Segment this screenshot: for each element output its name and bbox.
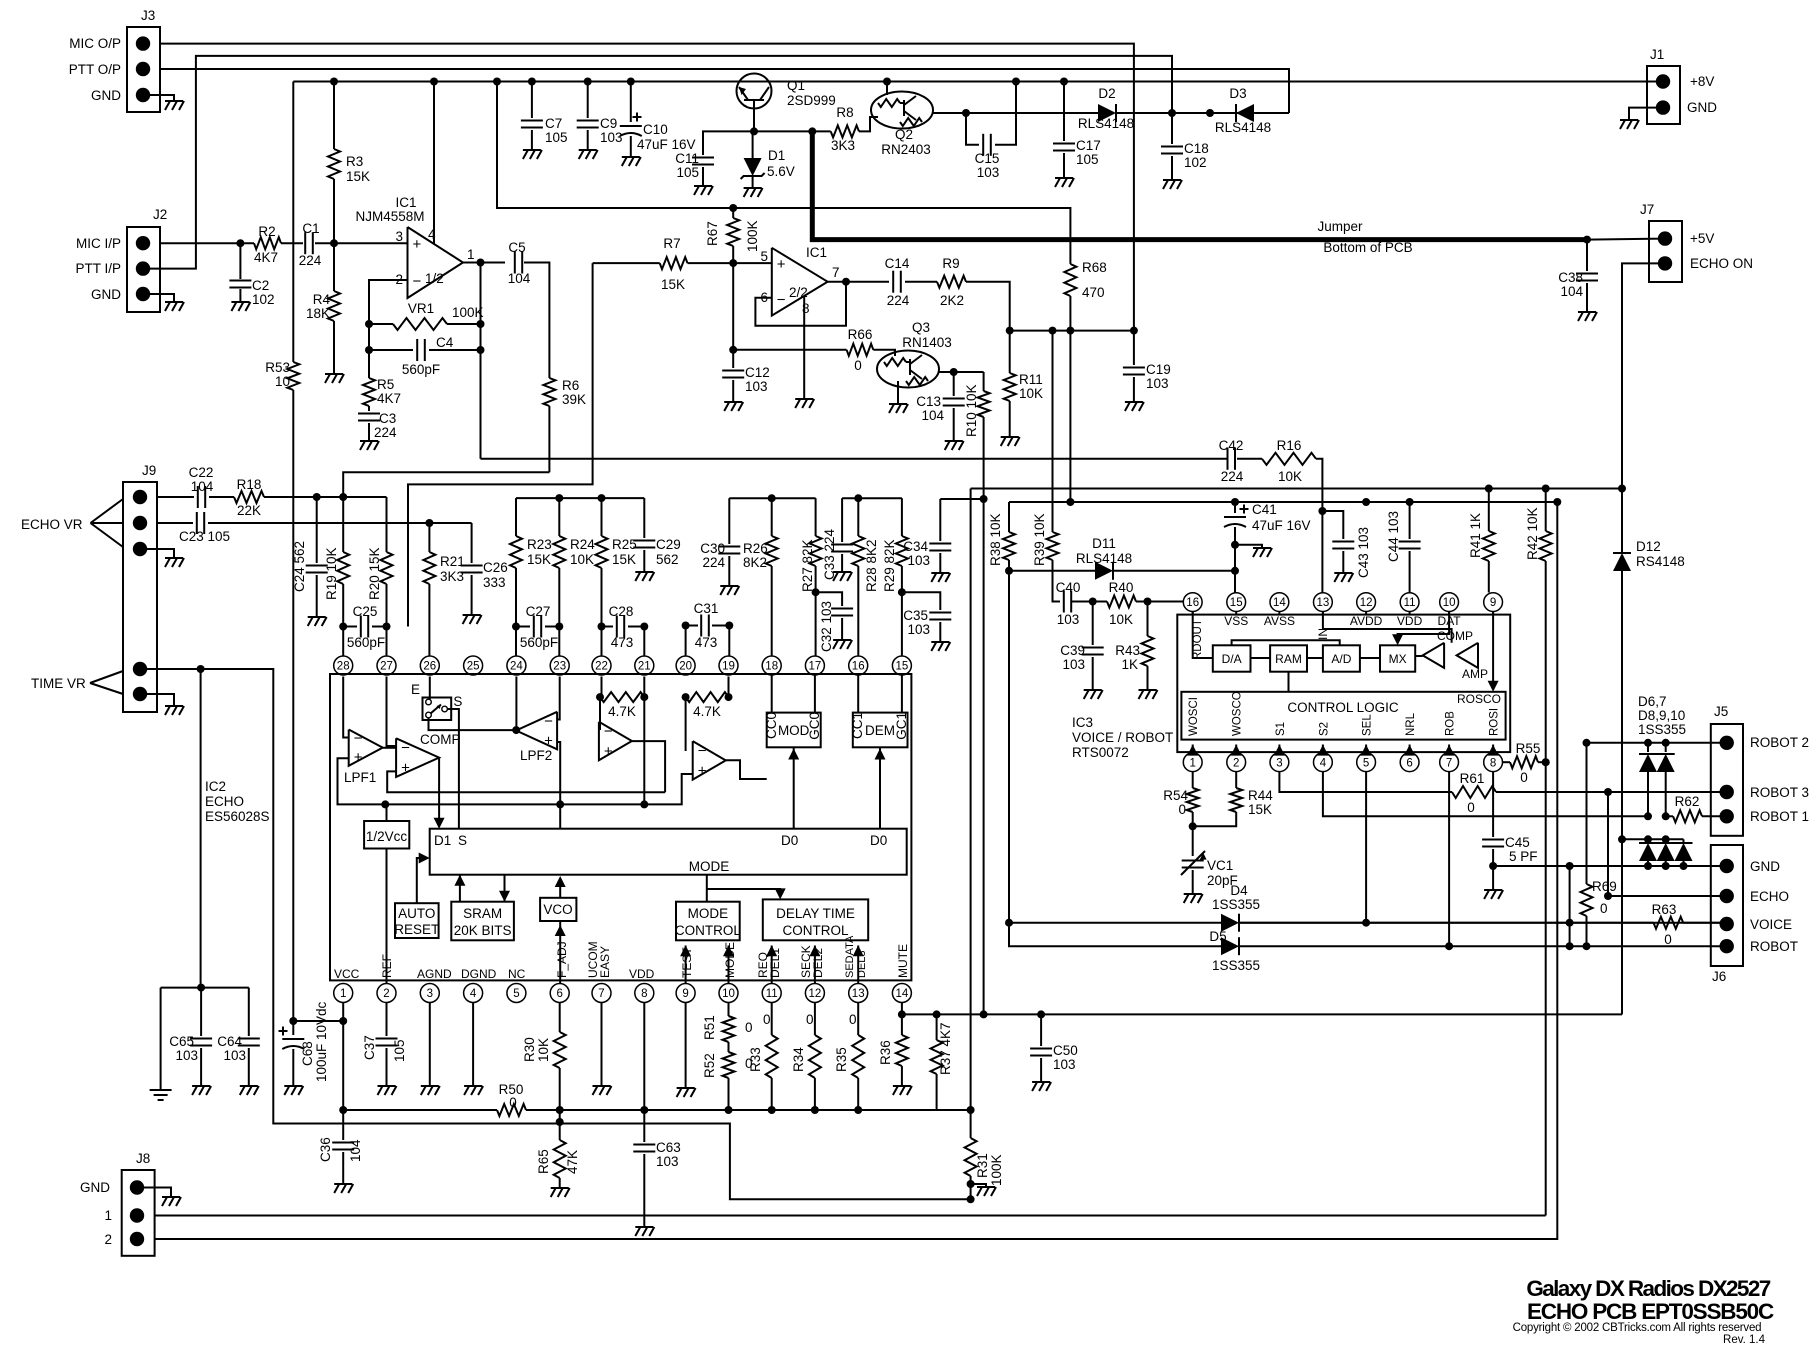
svg-text:C35: C35 <box>903 608 928 623</box>
svg-text:R37 4K7: R37 4K7 <box>938 1022 953 1075</box>
svg-text:ROB: ROB <box>1445 711 1457 736</box>
svg-text:R8: R8 <box>836 105 853 120</box>
svg-text:C30: C30 <box>700 541 725 556</box>
svg-text:26: 26 <box>423 661 436 673</box>
svg-text:19: 19 <box>722 661 735 673</box>
svg-text:Jumper: Jumper <box>1317 219 1363 234</box>
svg-text:104: 104 <box>348 1139 363 1162</box>
svg-text:+5V: +5V <box>1690 231 1714 246</box>
svg-text:15K: 15K <box>612 552 636 567</box>
svg-text:R43: R43 <box>1115 643 1140 658</box>
svg-text:0: 0 <box>1520 770 1528 785</box>
svg-text:−: − <box>777 291 786 308</box>
svg-text:S: S <box>458 833 467 848</box>
svg-text:100K: 100K <box>745 220 760 252</box>
svg-text:1/2: 1/2 <box>425 271 444 286</box>
svg-text:LPF1: LPF1 <box>344 770 376 785</box>
svg-text:VOICE: VOICE <box>1750 917 1792 932</box>
svg-text:10: 10 <box>275 374 290 389</box>
svg-text:+: + <box>354 749 363 766</box>
svg-text:PTT I/P: PTT I/P <box>75 261 121 276</box>
svg-text:EASY: EASY <box>598 946 612 978</box>
svg-text:R25: R25 <box>612 537 637 552</box>
svg-text:0: 0 <box>1664 932 1672 947</box>
svg-text:R19 10K: R19 10K <box>324 547 339 600</box>
svg-text:5 PF: 5 PF <box>1509 849 1538 864</box>
svg-text:9: 9 <box>682 988 688 1000</box>
svg-text:C44 103: C44 103 <box>1386 511 1401 562</box>
svg-text:103: 103 <box>1053 1057 1076 1072</box>
svg-text:AUTO: AUTO <box>398 906 435 921</box>
svg-text:R42 10K: R42 10K <box>1525 507 1540 560</box>
svg-text:SEDATA: SEDATA <box>844 935 856 978</box>
svg-text:GND: GND <box>1750 859 1780 874</box>
svg-text:C63: C63 <box>656 1140 681 1155</box>
svg-text:COMP: COMP <box>1437 629 1473 643</box>
svg-text:102: 102 <box>252 292 275 307</box>
svg-text:R67: R67 <box>705 221 720 246</box>
svg-text:28: 28 <box>337 661 350 673</box>
svg-text:105: 105 <box>676 165 699 180</box>
svg-text:J1: J1 <box>1650 47 1664 62</box>
svg-text:47K: 47K <box>565 1150 580 1174</box>
svg-text:16: 16 <box>852 661 865 673</box>
svg-text:103: 103 <box>656 1154 679 1169</box>
svg-text:VCO: VCO <box>543 902 572 917</box>
svg-text:R31: R31 <box>975 1153 990 1178</box>
svg-text:2: 2 <box>104 1232 112 1247</box>
svg-text:560pF: 560pF <box>402 362 440 377</box>
svg-text:VDD: VDD <box>629 967 655 981</box>
svg-text:11: 11 <box>1404 597 1416 609</box>
svg-text:+: + <box>401 760 410 777</box>
svg-text:J6: J6 <box>1712 969 1726 984</box>
svg-text:C3: C3 <box>379 411 396 426</box>
svg-text:REF: REF <box>380 954 394 978</box>
svg-text:IC1: IC1 <box>806 245 827 260</box>
svg-text:J5: J5 <box>1714 704 1728 719</box>
svg-text:3: 3 <box>395 229 403 244</box>
svg-text:A/D: A/D <box>1331 652 1351 666</box>
svg-text:ES56028S: ES56028S <box>205 809 270 824</box>
svg-text:SEL: SEL <box>1362 714 1374 736</box>
svg-text:−: − <box>354 730 363 747</box>
svg-text:15K: 15K <box>1248 802 1272 817</box>
svg-text:RLS4148: RLS4148 <box>1076 551 1132 566</box>
svg-text:Rev. 1.4: Rev. 1.4 <box>1723 1334 1766 1346</box>
svg-text:ROBOT 2: ROBOT 2 <box>1750 735 1809 750</box>
svg-text:+8V: +8V <box>1690 74 1714 89</box>
svg-text:0: 0 <box>763 1012 771 1027</box>
svg-text:R38 10K: R38 10K <box>988 513 1003 566</box>
svg-text:D8,9,10: D8,9,10 <box>1638 708 1685 723</box>
svg-text:DEL2: DEL2 <box>811 948 825 978</box>
svg-text:6: 6 <box>1406 757 1412 769</box>
svg-text:J3: J3 <box>141 8 155 23</box>
svg-text:RLS4148: RLS4148 <box>1215 120 1271 135</box>
svg-text:C41: C41 <box>1252 502 1277 517</box>
svg-text:0: 0 <box>854 358 862 373</box>
svg-text:VR1: VR1 <box>408 301 434 316</box>
svg-text:R34: R34 <box>791 1047 806 1072</box>
svg-text:C64: C64 <box>217 1034 242 1049</box>
svg-text:103: 103 <box>223 1048 246 1063</box>
svg-text:R44: R44 <box>1248 788 1273 803</box>
svg-text:R55: R55 <box>1516 741 1541 756</box>
svg-text:R24: R24 <box>570 537 595 552</box>
svg-text:4.7K: 4.7K <box>608 704 636 719</box>
svg-text:R20 15K: R20 15K <box>367 547 382 600</box>
svg-text:C14: C14 <box>885 256 910 271</box>
svg-text:12: 12 <box>1360 597 1373 609</box>
svg-text:27: 27 <box>380 661 393 673</box>
svg-text:−: − <box>413 273 422 290</box>
svg-text:R10 10K: R10 10K <box>964 384 979 437</box>
svg-text:R4: R4 <box>313 292 331 307</box>
svg-text:NC: NC <box>508 967 526 981</box>
svg-text:105: 105 <box>545 130 568 145</box>
svg-text:R23: R23 <box>527 537 552 552</box>
svg-text:473: 473 <box>695 635 718 650</box>
svg-text:C23 105: C23 105 <box>179 529 230 544</box>
svg-text:10K: 10K <box>1019 386 1043 401</box>
svg-text:224: 224 <box>887 293 910 308</box>
svg-text:VSS: VSS <box>1224 614 1248 628</box>
svg-text:R33: R33 <box>748 1047 763 1072</box>
svg-text:R35: R35 <box>834 1047 849 1072</box>
svg-text:C33 224: C33 224 <box>822 528 837 580</box>
svg-text:WOSCO: WOSCO <box>1232 691 1244 736</box>
svg-text:22K: 22K <box>237 503 261 518</box>
svg-text:103: 103 <box>1062 657 1085 672</box>
svg-text:0: 0 <box>509 1095 517 1110</box>
svg-text:103: 103 <box>600 130 623 145</box>
svg-text:R7: R7 <box>663 236 680 251</box>
svg-text:R5: R5 <box>377 377 394 392</box>
svg-text:5: 5 <box>1363 757 1369 769</box>
svg-text:R41 1K: R41 1K <box>1468 513 1483 558</box>
svg-text:RN2403: RN2403 <box>881 142 931 157</box>
svg-text:C26: C26 <box>483 560 508 575</box>
svg-text:ROBOT 1: ROBOT 1 <box>1750 809 1809 824</box>
svg-text:Q3: Q3 <box>912 320 930 335</box>
svg-text:C19: C19 <box>1146 362 1171 377</box>
svg-text:R53: R53 <box>265 360 290 375</box>
svg-text:1: 1 <box>104 1208 112 1223</box>
svg-text:560pF: 560pF <box>520 635 558 650</box>
svg-text:C13: C13 <box>916 394 941 409</box>
svg-text:5: 5 <box>760 249 768 264</box>
svg-text:15K: 15K <box>661 277 685 292</box>
svg-text:R6: R6 <box>562 378 579 393</box>
svg-text:GND: GND <box>91 287 121 302</box>
svg-text:D1: D1 <box>434 833 451 848</box>
svg-text:IC3: IC3 <box>1072 715 1093 730</box>
svg-text:103: 103 <box>1146 376 1169 391</box>
svg-text:104: 104 <box>921 408 944 423</box>
svg-text:Copyright © 2002 CBTricks.com: Copyright © 2002 CBTricks.com All rights… <box>1513 1322 1762 1334</box>
svg-text:16: 16 <box>1186 597 1199 609</box>
svg-text:100uF 10Vdc: 100uF 10Vdc <box>314 1001 329 1082</box>
svg-text:TIME VR: TIME VR <box>31 676 86 691</box>
svg-text:−: − <box>544 713 553 730</box>
svg-text:C40: C40 <box>1056 580 1081 595</box>
svg-text:ECHO ON: ECHO ON <box>1690 256 1753 271</box>
svg-text:10K: 10K <box>536 1038 551 1062</box>
svg-text:+: + <box>604 743 613 760</box>
svg-text:8K2: 8K2 <box>743 555 767 570</box>
svg-text:GC1: GC1 <box>894 712 909 740</box>
svg-text:CONTROL: CONTROL <box>782 923 848 938</box>
svg-text:SRAM: SRAM <box>463 906 502 921</box>
svg-text:8: 8 <box>802 301 810 316</box>
svg-text:5.6V: 5.6V <box>767 164 795 179</box>
svg-text:10K: 10K <box>1109 612 1133 627</box>
svg-text:C34: C34 <box>903 539 928 554</box>
svg-text:6: 6 <box>556 988 562 1000</box>
svg-text:MUTE: MUTE <box>896 944 910 978</box>
svg-text:VC1: VC1 <box>1207 858 1233 873</box>
svg-text:0: 0 <box>849 1012 857 1027</box>
svg-text:ROBOT: ROBOT <box>1750 939 1798 954</box>
svg-text:R63: R63 <box>1652 902 1677 917</box>
svg-text:24: 24 <box>510 661 523 673</box>
svg-text:CC1: CC1 <box>850 712 865 739</box>
svg-text:R68: R68 <box>1082 260 1107 275</box>
svg-text:R27 82K: R27 82K <box>800 539 815 592</box>
svg-text:C39: C39 <box>1060 643 1085 658</box>
svg-text:WOSCI: WOSCI <box>1188 697 1200 736</box>
svg-text:R16: R16 <box>1277 438 1302 453</box>
svg-text:47uF 16V: 47uF 16V <box>1252 518 1311 533</box>
svg-text:R69: R69 <box>1592 879 1617 894</box>
svg-text:7: 7 <box>598 988 604 1000</box>
svg-text:R39 10K: R39 10K <box>1032 513 1047 566</box>
svg-text:8: 8 <box>641 988 647 1000</box>
svg-text:CONTROL LOGIC: CONTROL LOGIC <box>1287 700 1399 715</box>
svg-text:RS4148: RS4148 <box>1636 554 1685 569</box>
svg-text:3: 3 <box>427 988 433 1000</box>
svg-text:D6,7: D6,7 <box>1638 694 1667 709</box>
svg-text:18K: 18K <box>306 306 330 321</box>
svg-text:103: 103 <box>977 165 1000 180</box>
svg-text:CONTROL: CONTROL <box>675 923 741 938</box>
svg-text:4: 4 <box>470 988 477 1000</box>
svg-text:105: 105 <box>1076 152 1099 167</box>
svg-text:MODE: MODE <box>689 859 730 874</box>
svg-text:C22: C22 <box>189 465 214 480</box>
svg-text:−: − <box>698 742 707 759</box>
svg-text:25: 25 <box>467 661 480 673</box>
svg-text:17: 17 <box>809 661 822 673</box>
svg-text:104: 104 <box>508 271 531 286</box>
svg-text:C24 562: C24 562 <box>292 541 307 592</box>
svg-text:C25: C25 <box>353 604 378 619</box>
svg-text:15K: 15K <box>527 552 551 567</box>
svg-text:R11: R11 <box>1019 372 1043 387</box>
svg-text:C1: C1 <box>302 221 319 236</box>
svg-text:C17: C17 <box>1076 138 1101 153</box>
svg-text:MX: MX <box>1389 652 1407 666</box>
svg-text:470: 470 <box>1082 285 1105 300</box>
svg-text:DGND: DGND <box>461 967 497 981</box>
svg-text:R3: R3 <box>346 154 363 169</box>
svg-text:18: 18 <box>765 661 778 673</box>
svg-text:562: 562 <box>656 552 679 567</box>
svg-text:0: 0 <box>806 1012 814 1027</box>
svg-text:J7: J7 <box>1640 202 1654 217</box>
svg-text:560pF: 560pF <box>347 635 385 650</box>
svg-text:3K3: 3K3 <box>440 569 464 584</box>
svg-text:D/A: D/A <box>1222 652 1242 666</box>
svg-text:103: 103 <box>1057 612 1080 627</box>
svg-text:3K3: 3K3 <box>831 138 855 153</box>
svg-text:20K BITS: 20K BITS <box>454 923 512 938</box>
svg-text:R28 8K2: R28 8K2 <box>864 539 879 592</box>
svg-text:2K2: 2K2 <box>940 293 964 308</box>
svg-text:DEL3: DEL3 <box>856 950 868 978</box>
svg-text:Bottom of PCB: Bottom of PCB <box>1323 240 1412 255</box>
svg-text:ECHO: ECHO <box>1750 889 1789 904</box>
svg-text:R51: R51 <box>702 1015 717 1040</box>
svg-text:14: 14 <box>1273 597 1286 609</box>
svg-text:333: 333 <box>483 575 506 590</box>
svg-text:DELAY TIME: DELAY TIME <box>776 906 855 921</box>
svg-text:−: − <box>604 723 613 740</box>
svg-text:ROBOT 3: ROBOT 3 <box>1750 785 1809 800</box>
svg-text:ECHO PCB EPT0SSB50C: ECHO PCB EPT0SSB50C <box>1527 1299 1774 1324</box>
svg-text:224: 224 <box>702 555 725 570</box>
svg-text:C38: C38 <box>1558 270 1583 285</box>
svg-text:39K: 39K <box>562 392 586 407</box>
svg-text:0: 0 <box>1600 901 1608 916</box>
svg-text:C50: C50 <box>1053 1043 1078 1058</box>
svg-text:10: 10 <box>1443 597 1456 609</box>
svg-text:PTT O/P: PTT O/P <box>69 62 121 77</box>
svg-text:2SD999: 2SD999 <box>787 93 836 108</box>
svg-text:R30: R30 <box>522 1037 537 1062</box>
svg-text:103: 103 <box>175 1048 198 1063</box>
svg-text:MIC I/P: MIC I/P <box>76 236 121 251</box>
svg-text:2: 2 <box>1233 757 1239 769</box>
svg-text:RTS0072: RTS0072 <box>1072 745 1129 760</box>
svg-text:C9: C9 <box>600 116 617 131</box>
svg-text:8: 8 <box>1490 757 1496 769</box>
svg-text:1: 1 <box>340 988 346 1000</box>
svg-text:4: 4 <box>1320 757 1327 769</box>
svg-text:D12: D12 <box>1636 539 1661 554</box>
svg-text:R62: R62 <box>1675 794 1700 809</box>
svg-text:C11: C11 <box>675 151 699 166</box>
svg-text:D1: D1 <box>768 148 785 163</box>
svg-text:CC0: CC0 <box>764 712 779 739</box>
svg-text:7: 7 <box>1446 757 1452 769</box>
svg-text:J9: J9 <box>142 463 156 478</box>
svg-text:14: 14 <box>896 988 909 1000</box>
svg-text:−: − <box>401 740 410 757</box>
svg-text:22: 22 <box>595 661 608 673</box>
svg-text:C7: C7 <box>545 116 562 131</box>
svg-text:RESET: RESET <box>394 922 439 937</box>
svg-text:R54: R54 <box>1163 788 1188 803</box>
svg-text:C32 103: C32 103 <box>819 601 834 652</box>
svg-text:ROSI: ROSI <box>1489 708 1501 736</box>
svg-text:47uF 16V: 47uF 16V <box>637 137 696 152</box>
svg-text:11: 11 <box>766 988 778 1000</box>
svg-text:D2: D2 <box>1098 86 1115 101</box>
svg-text:GND: GND <box>1687 100 1717 115</box>
svg-text:4.7K: 4.7K <box>693 704 721 719</box>
svg-text:R65: R65 <box>536 1149 551 1174</box>
svg-text:RDOUT: RDOUT <box>1192 619 1204 660</box>
svg-text:GND: GND <box>91 88 121 103</box>
svg-text:AVSS: AVSS <box>1264 614 1295 628</box>
svg-text:C65: C65 <box>169 1034 194 1049</box>
svg-text:C15: C15 <box>975 151 1000 166</box>
svg-text:C10: C10 <box>643 122 668 137</box>
svg-text:AGND: AGND <box>417 967 452 981</box>
svg-text:RAM: RAM <box>1275 652 1302 666</box>
svg-text:0: 0 <box>1467 800 1475 815</box>
svg-text:C28: C28 <box>609 604 634 619</box>
svg-text:VCC: VCC <box>334 967 360 981</box>
svg-text:NRL: NRL <box>1405 712 1417 736</box>
svg-text:4K7: 4K7 <box>254 250 278 265</box>
svg-text:S2: S2 <box>1318 722 1330 736</box>
svg-text:C2: C2 <box>252 278 269 293</box>
svg-text:+: + <box>698 762 707 779</box>
svg-text:R36: R36 <box>878 1040 893 1065</box>
svg-text:RLS4148: RLS4148 <box>1078 116 1134 131</box>
svg-text:5: 5 <box>513 988 519 1000</box>
svg-text:1SS355: 1SS355 <box>1638 722 1686 737</box>
svg-text:C45: C45 <box>1505 835 1530 850</box>
svg-text:C31: C31 <box>694 601 719 616</box>
svg-text:103: 103 <box>907 553 930 568</box>
svg-text:D4: D4 <box>1230 883 1248 898</box>
svg-text:0: 0 <box>745 1020 753 1035</box>
svg-text:GC0: GC0 <box>807 712 822 740</box>
svg-text:R52: R52 <box>702 1053 717 1078</box>
svg-text:E: E <box>411 682 420 697</box>
svg-text:105: 105 <box>392 1039 407 1062</box>
svg-text:D0: D0 <box>870 833 887 848</box>
svg-text:D11: D11 <box>1092 536 1116 551</box>
svg-text:9: 9 <box>1490 597 1496 609</box>
svg-text:D5: D5 <box>1209 929 1226 944</box>
svg-text:J2: J2 <box>153 207 167 222</box>
svg-text:1SS355: 1SS355 <box>1212 958 1260 973</box>
svg-text:C18: C18 <box>1184 141 1209 156</box>
svg-text:1/2Vcc: 1/2Vcc <box>366 829 408 844</box>
svg-text:F_ADJ: F_ADJ <box>555 941 569 978</box>
svg-text:7: 7 <box>832 265 840 280</box>
svg-text:C43 103: C43 103 <box>1356 527 1371 578</box>
svg-text:TEST: TEST <box>680 947 694 978</box>
svg-text:10K: 10K <box>570 552 594 567</box>
svg-text:1SS355: 1SS355 <box>1212 897 1260 912</box>
svg-text:10: 10 <box>722 988 735 1000</box>
svg-text:MOD: MOD <box>778 723 810 738</box>
svg-text:100K: 100K <box>452 305 484 320</box>
svg-text:R18: R18 <box>237 477 262 492</box>
svg-text:+: + <box>413 236 422 253</box>
svg-text:COMP: COMP <box>420 732 461 747</box>
svg-text:R26: R26 <box>743 541 768 556</box>
svg-text:VDD: VDD <box>1397 614 1423 628</box>
svg-text:Q1: Q1 <box>787 78 805 93</box>
svg-text:20: 20 <box>679 661 692 673</box>
